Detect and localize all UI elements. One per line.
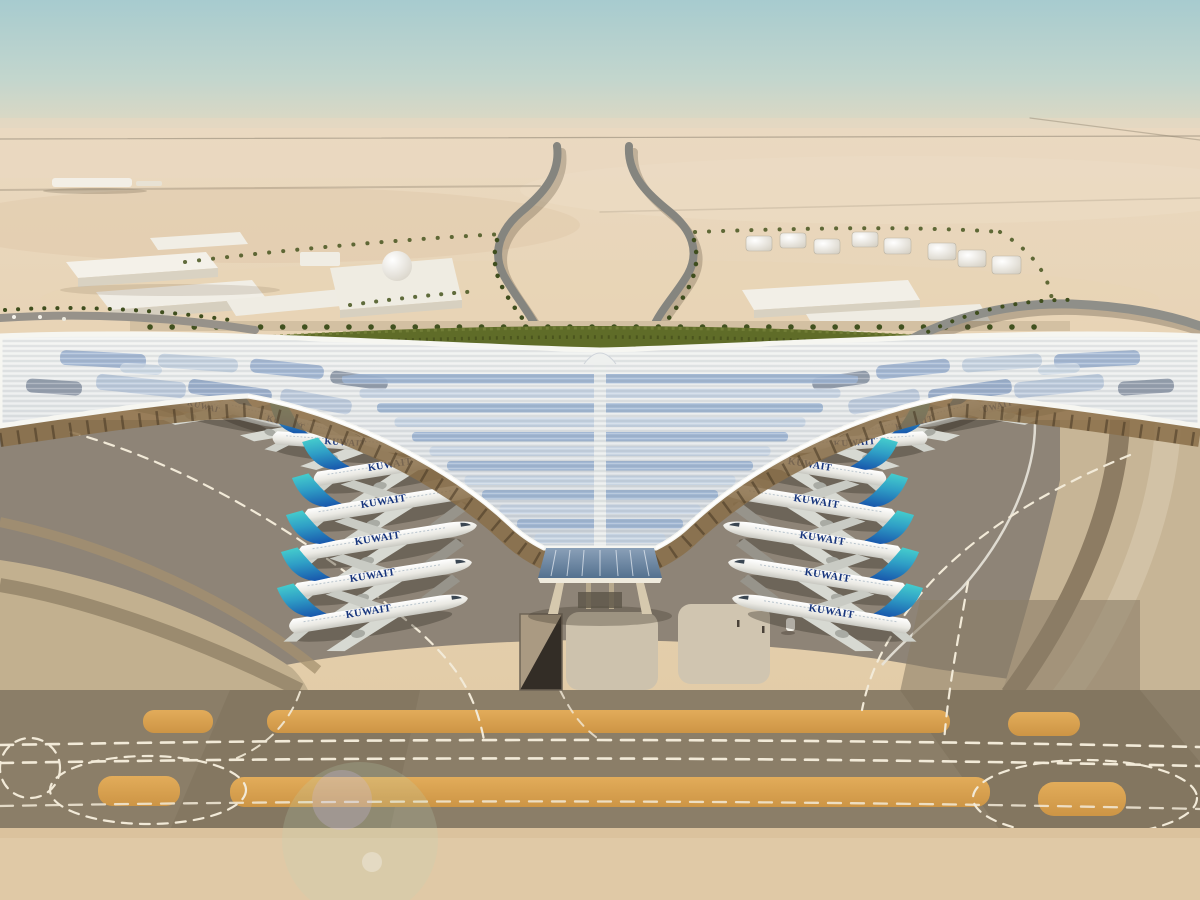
airport-aerial-rendering: KUWAIT KUWAIT KUWAIT KUWAIT [0, 0, 1200, 900]
foreground-sand [0, 828, 1200, 900]
taxiway-band [0, 690, 1200, 830]
